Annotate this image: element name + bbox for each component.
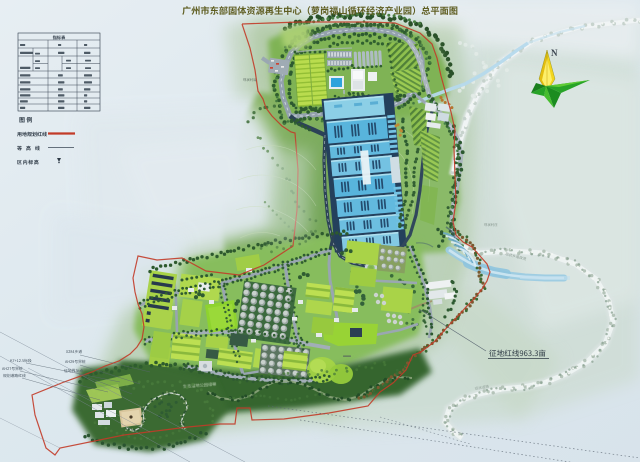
svg-text:N: N [551,48,558,58]
